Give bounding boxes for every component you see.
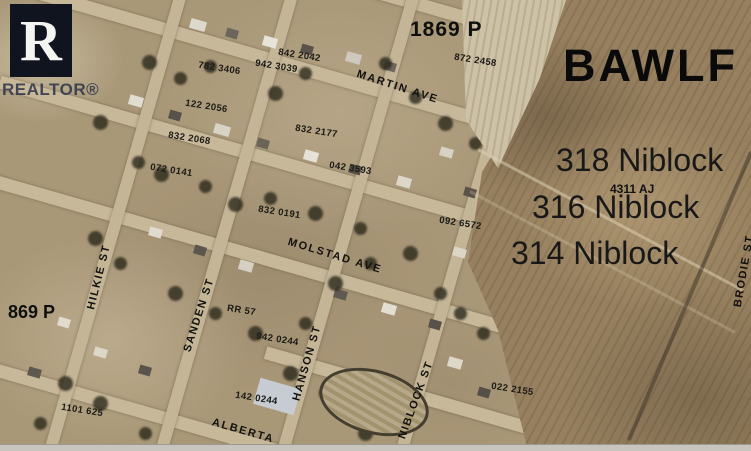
realtor-wordmark: REALTOR®: [2, 80, 99, 100]
brush-specks: [0, 0, 5, 5]
realtor-logo: R: [10, 4, 72, 77]
listing-label-314-niblock: 314 Niblock: [511, 235, 678, 272]
plan-number-1869p: 1869 P: [410, 18, 483, 42]
realtor-logo-r: R: [20, 12, 62, 70]
listing-label-318-niblock: 318 Niblock: [556, 142, 723, 179]
aerial-map: BAWLF 318 Niblock 316 Niblock 314 Nibloc…: [0, 0, 751, 451]
bottom-road: [0, 444, 751, 451]
plan-number-4311aj: 4311 AJ: [610, 182, 654, 196]
town-name: BAWLF: [563, 40, 738, 92]
plan-number-869p: 869 P: [8, 302, 55, 323]
